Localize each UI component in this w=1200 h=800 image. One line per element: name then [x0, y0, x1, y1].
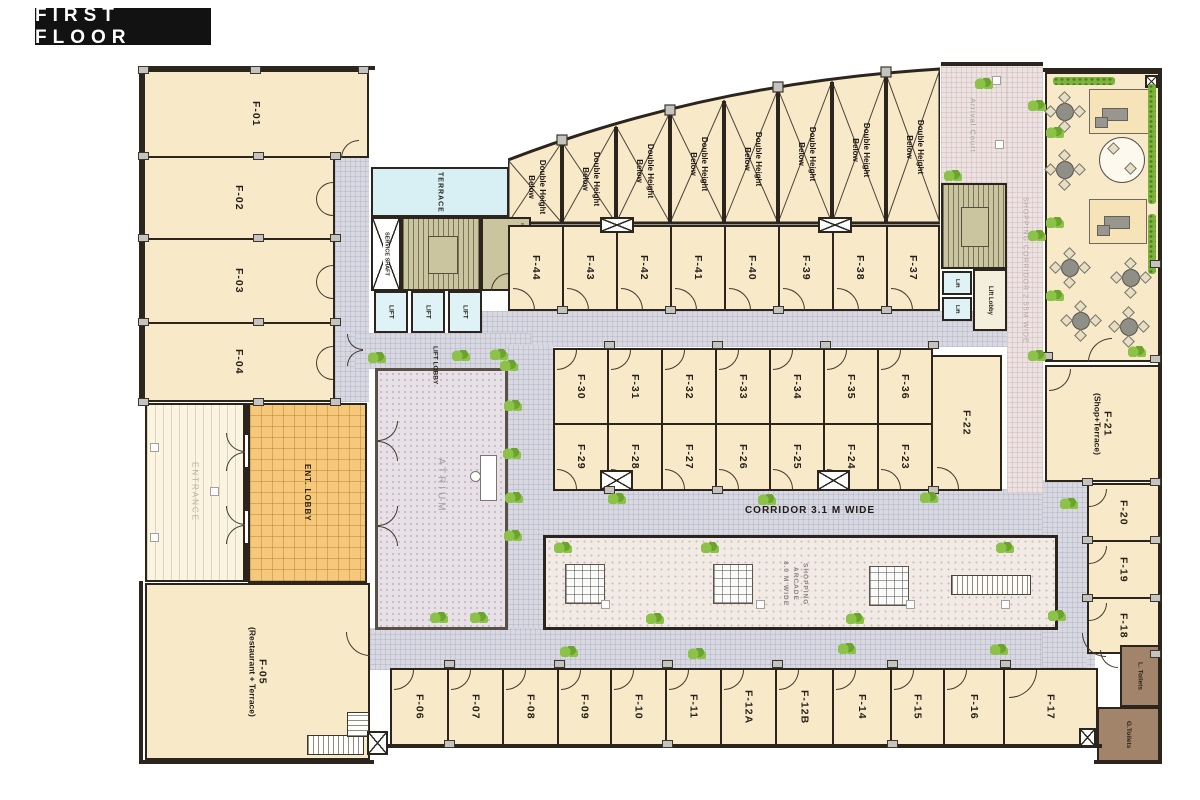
plant	[688, 648, 706, 659]
dining-table	[1063, 303, 1099, 339]
room-label: F-32	[683, 374, 695, 400]
floor-title-badge: FIRST FLOOR	[35, 8, 211, 45]
door-arc	[719, 350, 739, 370]
door-arc	[611, 350, 631, 370]
door-arc	[378, 421, 398, 441]
room-f-20: F-20	[1087, 483, 1160, 542]
outer-wall	[1043, 68, 1162, 72]
column	[138, 152, 149, 160]
atrium-label: ATRIUM	[426, 431, 456, 541]
double-height-label: Below	[689, 152, 698, 176]
room-label: F-31	[629, 374, 641, 400]
room-f-21: F-21 (Shop+Terrace)	[1045, 365, 1160, 482]
sofa-set	[1089, 89, 1149, 134]
lift-2: LIFT	[411, 291, 445, 333]
lift-1: LIFT	[374, 291, 408, 333]
room-f-14: F-14	[832, 668, 892, 746]
column	[150, 533, 159, 542]
room-label: F-28	[629, 444, 641, 470]
room-label-group: F-21 (Shop+Terrace)	[1092, 393, 1114, 455]
chair	[1044, 163, 1057, 176]
plant	[1046, 290, 1064, 301]
stair-landing	[428, 236, 458, 274]
wall-segment	[244, 403, 248, 435]
door-arc	[947, 670, 967, 690]
room-label: F-14	[856, 694, 868, 720]
room-label: F-20	[1117, 500, 1129, 526]
column	[557, 306, 568, 314]
room-f-06: F-06	[390, 668, 449, 746]
column	[330, 152, 341, 160]
room-f-37: F-37	[886, 225, 940, 311]
room-f-32: F-32	[661, 348, 717, 425]
lift-right-1: Lift	[942, 271, 972, 295]
door-arc	[557, 350, 577, 370]
dining-table	[1052, 250, 1088, 286]
outer-wall	[139, 581, 143, 764]
room-label: F-43	[584, 255, 596, 281]
double-height-label: Double Height	[862, 123, 871, 178]
outer-wall	[1094, 760, 1162, 764]
corridor-bottom	[355, 628, 1095, 670]
plant	[560, 646, 578, 657]
door-arc	[316, 346, 333, 363]
column	[662, 660, 673, 668]
double-height-label: Below	[527, 175, 536, 199]
room-f-42: F-42	[616, 225, 672, 311]
plant	[1028, 230, 1046, 241]
room-f-07: F-07	[447, 668, 504, 746]
column	[928, 341, 939, 349]
double-height-label: Below	[743, 147, 752, 171]
room-label: F-42	[638, 255, 650, 281]
table-top	[1056, 103, 1074, 121]
shaft-box	[817, 470, 850, 491]
door-arc	[827, 350, 847, 370]
double-height-label: Below	[581, 167, 590, 191]
column	[253, 152, 264, 160]
door-arc	[316, 363, 333, 380]
table-top	[1061, 259, 1079, 277]
shopping-arcade: SHOPPING ARCADE 8.0 M WIDE	[543, 535, 1058, 630]
skylight	[713, 564, 753, 604]
room-label: F-27	[683, 444, 695, 470]
chair	[1108, 320, 1121, 333]
table-top	[1122, 269, 1140, 287]
lift-lobby-left-label: LIFT LOBBY	[418, 336, 452, 394]
column	[773, 306, 784, 314]
room-f-41: F-41	[670, 225, 726, 311]
plant	[430, 612, 448, 623]
plant	[996, 542, 1014, 553]
room-label: F-29	[575, 444, 587, 470]
room-label: F-01	[250, 101, 262, 127]
lift-label: LIFT	[462, 305, 469, 319]
chair	[1044, 105, 1057, 118]
plant	[490, 349, 508, 360]
room-label: F-40	[746, 255, 758, 281]
double-height-label: Double Height	[808, 127, 817, 182]
room-label: F-36	[899, 374, 911, 400]
chair	[1124, 257, 1137, 270]
plant	[846, 613, 864, 624]
door-arc	[1089, 603, 1107, 621]
door-arc	[665, 469, 685, 489]
column	[358, 66, 369, 74]
double-height-label: Double Height	[754, 132, 763, 187]
column	[444, 660, 455, 668]
door-arc	[316, 182, 333, 199]
plant	[1028, 350, 1046, 361]
double-height-label: Below	[851, 138, 860, 162]
plant	[975, 78, 993, 89]
door-arc	[378, 441, 398, 461]
double-height-label: Double Height	[700, 137, 709, 192]
f05-stair-run	[307, 735, 364, 755]
room-f-02: F-02	[143, 156, 335, 240]
room-label: F-33	[737, 374, 749, 400]
terrace-label: TERRACE	[437, 172, 444, 213]
door-arc	[881, 469, 901, 489]
column	[150, 443, 159, 452]
room-label: F-12A	[742, 690, 754, 724]
door-arc	[316, 199, 333, 216]
column	[1150, 594, 1161, 602]
door-arc	[378, 526, 398, 546]
door-arc	[724, 670, 744, 690]
plant	[500, 360, 518, 371]
plant	[504, 400, 522, 411]
column	[712, 341, 723, 349]
room-f-44: F-44	[508, 225, 564, 311]
door-arc	[316, 282, 333, 299]
floor-plan: FIRST FLOOR Double	[0, 0, 1200, 800]
arcade-line-1: SHOPPING	[800, 561, 810, 606]
shaft-box	[1079, 728, 1096, 747]
plant	[1060, 498, 1078, 509]
room-label: F-37	[907, 255, 919, 281]
sofa-cushion	[1095, 117, 1108, 128]
room-label: F-17	[1044, 694, 1056, 720]
arrival-court-text: Arrival Court	[969, 98, 978, 153]
column	[444, 740, 455, 748]
outer-wall	[386, 744, 1102, 748]
plant	[990, 644, 1008, 655]
double-height-label: Below	[635, 159, 644, 183]
column	[330, 234, 341, 242]
door-arc	[779, 670, 799, 690]
chair	[1107, 142, 1120, 155]
door-arc	[378, 506, 398, 526]
shopping-corridor-text: SHOPPING CORRIDOR 2.55M WIDE	[1022, 197, 1029, 344]
column	[887, 660, 898, 668]
chair	[1122, 306, 1135, 319]
room-f-15: F-15	[890, 668, 945, 746]
arcade-line-3: 8.0 M WIDE	[780, 561, 790, 606]
door-arc	[451, 670, 471, 690]
plant	[505, 492, 523, 503]
room-f-01: F-01	[143, 70, 369, 158]
sofa-cushion	[1097, 225, 1110, 236]
room-label: F-44	[530, 255, 542, 281]
room-f-34: F-34	[769, 348, 825, 425]
stair-left	[401, 217, 481, 291]
chair	[1074, 300, 1087, 313]
corridor-label: CORRIDOR 3.1 M WIDE	[690, 502, 930, 518]
column	[253, 398, 264, 406]
room-f-16: F-16	[943, 668, 1005, 746]
column	[1150, 478, 1161, 486]
room-f-19: F-19	[1087, 540, 1160, 599]
plant	[920, 492, 938, 503]
plant	[758, 494, 776, 505]
door-arc	[513, 288, 535, 310]
round-feature-table	[1099, 137, 1145, 183]
g-toilets-label: G.Toilets	[1125, 721, 1132, 748]
door-arc	[837, 288, 859, 310]
room-label: F-09	[578, 694, 590, 720]
room-label: F-41	[692, 255, 704, 281]
arrival-court-label: Arrival Court	[958, 80, 988, 170]
hedge	[1148, 84, 1156, 204]
dining-table	[1047, 152, 1083, 188]
arcade-label-text: SHOPPING ARCADE 8.0 M WIDE	[780, 561, 809, 606]
plant	[944, 170, 962, 181]
shaft-box	[818, 217, 852, 233]
wall-segment	[244, 467, 248, 511]
skylight	[869, 566, 909, 606]
chair	[1049, 261, 1062, 274]
chair	[1058, 91, 1071, 104]
column	[138, 234, 149, 242]
room-f-05: F-05 (Restaurant + Terrace)	[145, 583, 370, 760]
column	[665, 306, 676, 314]
room-f-03: F-03	[143, 238, 335, 324]
room-label: F-02	[233, 185, 245, 211]
table-top	[1056, 161, 1074, 179]
room-label: F-19	[1117, 557, 1129, 583]
f05-stair-run	[347, 712, 369, 737]
room-label: F-03	[233, 268, 245, 294]
plant	[1028, 100, 1046, 111]
service-shaft-label: SERVICE SHAFT	[383, 232, 390, 276]
room-label: F-39	[800, 255, 812, 281]
dining-table	[1047, 94, 1083, 130]
outer-wall	[941, 62, 1043, 66]
double-height-truss-band: Double Height Below Double Height Below …	[508, 65, 940, 228]
door-arc	[614, 670, 634, 690]
entrance-lobby: ENT. LOBBY	[248, 403, 367, 583]
room-label: F-30	[575, 374, 587, 400]
column	[253, 318, 264, 326]
door-arc	[561, 670, 581, 690]
column	[662, 740, 673, 748]
room-label-group: F-05 (Restaurant + Terrace)	[247, 627, 269, 717]
column	[250, 66, 261, 74]
column	[756, 600, 765, 609]
column	[995, 140, 1004, 149]
door-arc	[394, 670, 414, 690]
door-arc	[894, 670, 914, 690]
column	[712, 486, 723, 494]
table-top	[1120, 318, 1138, 336]
door-arc	[1089, 546, 1107, 564]
room-label: F-25	[791, 444, 803, 470]
shaft-box	[367, 731, 388, 755]
column	[210, 487, 219, 496]
chair	[1063, 247, 1076, 260]
room-f-22: F-22	[931, 355, 1002, 491]
column	[554, 660, 565, 668]
room-f-23: F-23	[877, 423, 933, 491]
double-height-label: Double Height	[646, 144, 655, 199]
room-label: F-24	[845, 444, 857, 470]
column	[1082, 536, 1093, 544]
stair-landing	[961, 207, 989, 247]
door-arc	[1089, 489, 1107, 507]
skylight	[565, 564, 605, 604]
double-height-label: Below	[797, 142, 806, 166]
floor-title: FIRST FLOOR	[35, 5, 211, 49]
lift-lobby-right: Lift Lobby	[973, 269, 1007, 331]
room-label: F-34	[791, 374, 803, 400]
room-f-11: F-11	[665, 668, 722, 746]
door-arc	[836, 670, 856, 690]
room-label: F-38	[854, 255, 866, 281]
room-f-40: F-40	[724, 225, 780, 311]
column	[881, 306, 892, 314]
door-arc	[891, 288, 913, 310]
plant	[452, 350, 470, 361]
entrance: ENTRANCE	[145, 403, 245, 582]
room-f-12a: F-12A	[720, 668, 777, 746]
plant	[368, 352, 386, 363]
column	[820, 341, 831, 349]
chair	[1124, 162, 1137, 175]
dining-table	[1113, 260, 1149, 296]
plant	[701, 542, 719, 553]
lift-label: LIFT	[388, 305, 395, 319]
arcade-line-2: ARCADE	[790, 561, 800, 606]
door-arc	[1088, 338, 1112, 362]
chair	[1110, 271, 1123, 284]
door-arc	[675, 288, 697, 310]
column	[138, 398, 149, 406]
door-arc	[491, 273, 509, 291]
chair	[1060, 314, 1073, 327]
room-label: F-04	[233, 349, 245, 375]
column	[604, 341, 615, 349]
room-label: F-22	[960, 410, 972, 436]
column	[601, 600, 610, 609]
door-arc	[621, 288, 643, 310]
door-arc	[773, 469, 793, 489]
ent-lobby-label: ENT. LOBBY	[303, 464, 312, 522]
plant	[503, 448, 521, 459]
entrance-label: ENTRANCE	[191, 462, 200, 522]
room-f-38: F-38	[832, 225, 888, 311]
column	[1150, 355, 1161, 363]
door-arc	[729, 288, 751, 310]
room-label: F-21	[1101, 393, 1113, 455]
table-top	[1072, 312, 1090, 330]
room-f-08: F-08	[502, 668, 559, 746]
wall-segment	[244, 543, 248, 582]
room-f-12b: F-12B	[775, 668, 834, 746]
room-f-30: F-30	[553, 348, 609, 425]
lift-label: LIFT	[425, 305, 432, 319]
room-label: F-23	[899, 444, 911, 470]
room-label: F-12B	[798, 690, 810, 724]
column	[1150, 650, 1161, 658]
door-arc	[669, 670, 689, 690]
gents-toilets: G.Toilets	[1097, 707, 1160, 762]
atrium-label-text: ATRIUM	[436, 458, 447, 514]
column	[330, 398, 341, 406]
column	[1001, 600, 1010, 609]
sofa-set	[1089, 199, 1147, 244]
column	[992, 76, 1001, 85]
room-label: F-06	[413, 694, 425, 720]
door-arc	[506, 670, 526, 690]
reception-desk	[480, 455, 497, 501]
atrium: ATRIUM	[375, 368, 508, 630]
plant	[470, 612, 488, 623]
door-arc	[881, 350, 901, 370]
room-label: F-05	[256, 627, 268, 717]
lift-lobby-right-label: Lift Lobby	[987, 286, 993, 315]
column	[906, 600, 915, 609]
stair-right	[941, 183, 1007, 269]
door-arc	[665, 350, 685, 370]
double-height-label: Double Height	[592, 152, 601, 207]
door-arc	[1049, 369, 1071, 391]
door-arc	[316, 265, 333, 282]
column	[138, 66, 149, 74]
plant	[1048, 610, 1066, 621]
door-arc	[1009, 670, 1037, 698]
lift-3: LIFT	[448, 291, 482, 333]
column	[1150, 260, 1161, 268]
room-label: F-26	[737, 444, 749, 470]
arcade-stair	[951, 575, 1031, 595]
room-label: F-08	[524, 694, 536, 720]
room-label: F-11	[687, 694, 699, 719]
column	[1150, 536, 1161, 544]
door-arc	[341, 140, 359, 158]
column	[1000, 660, 1011, 668]
l-toilets-label: L. Toilets	[1137, 662, 1144, 690]
room-f-43: F-43	[562, 225, 618, 311]
column	[887, 740, 898, 748]
outer-wall	[139, 760, 374, 764]
double-height-label: Double Height	[538, 160, 547, 215]
column	[138, 318, 149, 326]
room-f-36: F-36	[877, 348, 933, 425]
plant	[1046, 217, 1064, 228]
plant	[608, 493, 626, 504]
terrace: TERRACE	[371, 167, 509, 217]
room-label: F-35	[845, 374, 857, 400]
room-label: F-10	[632, 694, 644, 720]
plant	[504, 530, 522, 541]
room-label: F-16	[968, 694, 980, 720]
plant	[1128, 346, 1146, 357]
plant	[838, 643, 856, 654]
arcade-label: SHOPPING ARCADE 8.0 M WIDE	[778, 546, 812, 622]
room-f-04: F-04	[143, 322, 335, 402]
double-height-label: Below	[905, 135, 914, 159]
